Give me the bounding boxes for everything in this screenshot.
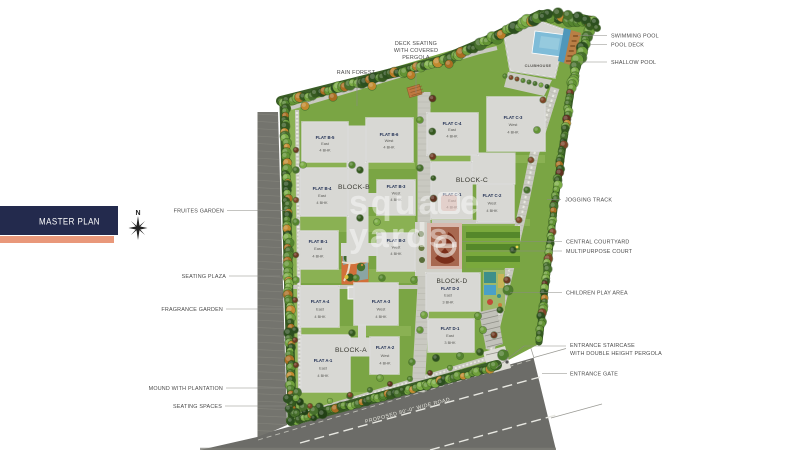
svg-text:East: East: [314, 246, 323, 251]
svg-text:RAIN FOREST: RAIN FOREST: [337, 70, 376, 76]
svg-text:East: East: [444, 293, 453, 298]
svg-text:SEATING PLAZA: SEATING PLAZA: [182, 274, 227, 280]
svg-text:East: East: [318, 193, 327, 198]
svg-text:yards.: yards.: [349, 217, 461, 255]
svg-text:West: West: [377, 307, 387, 312]
svg-text:East: East: [321, 141, 330, 146]
svg-text:4 BHK: 4 BHK: [317, 373, 329, 378]
svg-text:4 BHK: 4 BHK: [314, 314, 326, 319]
svg-text:CLUBHOUSE: CLUBHOUSE: [525, 64, 552, 68]
svg-text:FLAT C-4: FLAT C-4: [443, 121, 462, 126]
svg-text:3 BHK: 3 BHK: [444, 340, 456, 345]
svg-text:FLAT D-1: FLAT D-1: [441, 326, 460, 331]
svg-text:e: e: [460, 184, 479, 222]
svg-text:CENTRAL COURTYARD: CENTRAL COURTYARD: [566, 240, 630, 246]
svg-text:POOL DECK: POOL DECK: [611, 43, 644, 49]
svg-text:East: East: [319, 366, 328, 371]
svg-text:FLAT A-4: FLAT A-4: [311, 299, 330, 304]
svg-text:WITH DOUBLE HEIGHT PERGOLA: WITH DOUBLE HEIGHT PERGOLA: [570, 351, 662, 357]
svg-text:4 BHK: 4 BHK: [379, 361, 391, 366]
svg-text:SHALLOW POOL: SHALLOW POOL: [611, 60, 656, 66]
svg-text:FLAT B-1: FLAT B-1: [309, 239, 328, 244]
svg-text:FLAT C-3: FLAT C-3: [504, 115, 523, 120]
svg-text:ENTRANCE STAIRCASE: ENTRANCE STAIRCASE: [570, 343, 635, 349]
svg-text:East: East: [316, 307, 325, 312]
svg-text:FLAT D-2: FLAT D-2: [441, 286, 460, 291]
svg-text:West: West: [509, 122, 519, 127]
svg-text:MOUND WITH PLANTATION: MOUND WITH PLANTATION: [149, 386, 223, 392]
svg-text:FLAT B-5: FLAT B-5: [316, 135, 335, 140]
svg-text:4 BHK: 4 BHK: [507, 130, 519, 135]
svg-text:FLAT A-3: FLAT A-3: [372, 299, 391, 304]
svg-text:SEATING SPACES: SEATING SPACES: [173, 404, 222, 410]
svg-text:4 BHK: 4 BHK: [312, 254, 324, 259]
svg-text:FLAT B-4: FLAT B-4: [313, 186, 332, 191]
svg-text:FLAT B-6: FLAT B-6: [380, 132, 399, 137]
svg-text:East: East: [448, 127, 457, 132]
svg-text:FLAT A-2: FLAT A-2: [376, 345, 395, 350]
svg-text:MULTIPURPOSE COURT: MULTIPURPOSE COURT: [566, 249, 633, 255]
svg-text:FRUITES GARDEN: FRUITES GARDEN: [174, 209, 224, 215]
svg-text:BLOCK-D: BLOCK-D: [437, 278, 468, 285]
svg-text:CHILDREN PLAY AREA: CHILDREN PLAY AREA: [566, 291, 628, 297]
svg-text:4 BHK: 4 BHK: [486, 208, 498, 213]
svg-text:ENTRANCE GATE: ENTRANCE GATE: [570, 372, 618, 378]
svg-text:West: West: [381, 353, 391, 358]
svg-text:JOGGING TRACK: JOGGING TRACK: [565, 198, 612, 204]
svg-text:4 BHK: 4 BHK: [319, 148, 331, 153]
svg-text:FRAGRANCE GARDEN: FRAGRANCE GARDEN: [161, 307, 223, 313]
svg-text:DECK SEATING: DECK SEATING: [395, 41, 437, 47]
svg-text:PERGOLA: PERGOLA: [402, 55, 430, 61]
svg-text:BLOCK-C: BLOCK-C: [456, 177, 488, 184]
svg-text:4 BHK: 4 BHK: [375, 314, 387, 319]
svg-text:4 BHK: 4 BHK: [316, 200, 328, 205]
svg-text:West: West: [385, 138, 395, 143]
svg-text:BLOCK-A: BLOCK-A: [335, 347, 367, 354]
svg-text:4 BHK: 4 BHK: [446, 134, 458, 139]
svg-text:FLAT A-1: FLAT A-1: [314, 358, 333, 363]
svg-text:4 BHK: 4 BHK: [383, 145, 395, 150]
svg-text:FLAT C-2: FLAT C-2: [483, 193, 502, 198]
svg-text:East: East: [446, 333, 455, 338]
svg-text:SWIMMING POOL: SWIMMING POOL: [611, 34, 659, 40]
svg-text:WITH COVERED: WITH COVERED: [394, 48, 438, 54]
svg-text:3 BHK: 3 BHK: [442, 300, 454, 305]
svg-text:N: N: [135, 210, 140, 217]
svg-text:West: West: [488, 201, 498, 206]
svg-text:MASTER PLAN: MASTER PLAN: [39, 217, 100, 227]
